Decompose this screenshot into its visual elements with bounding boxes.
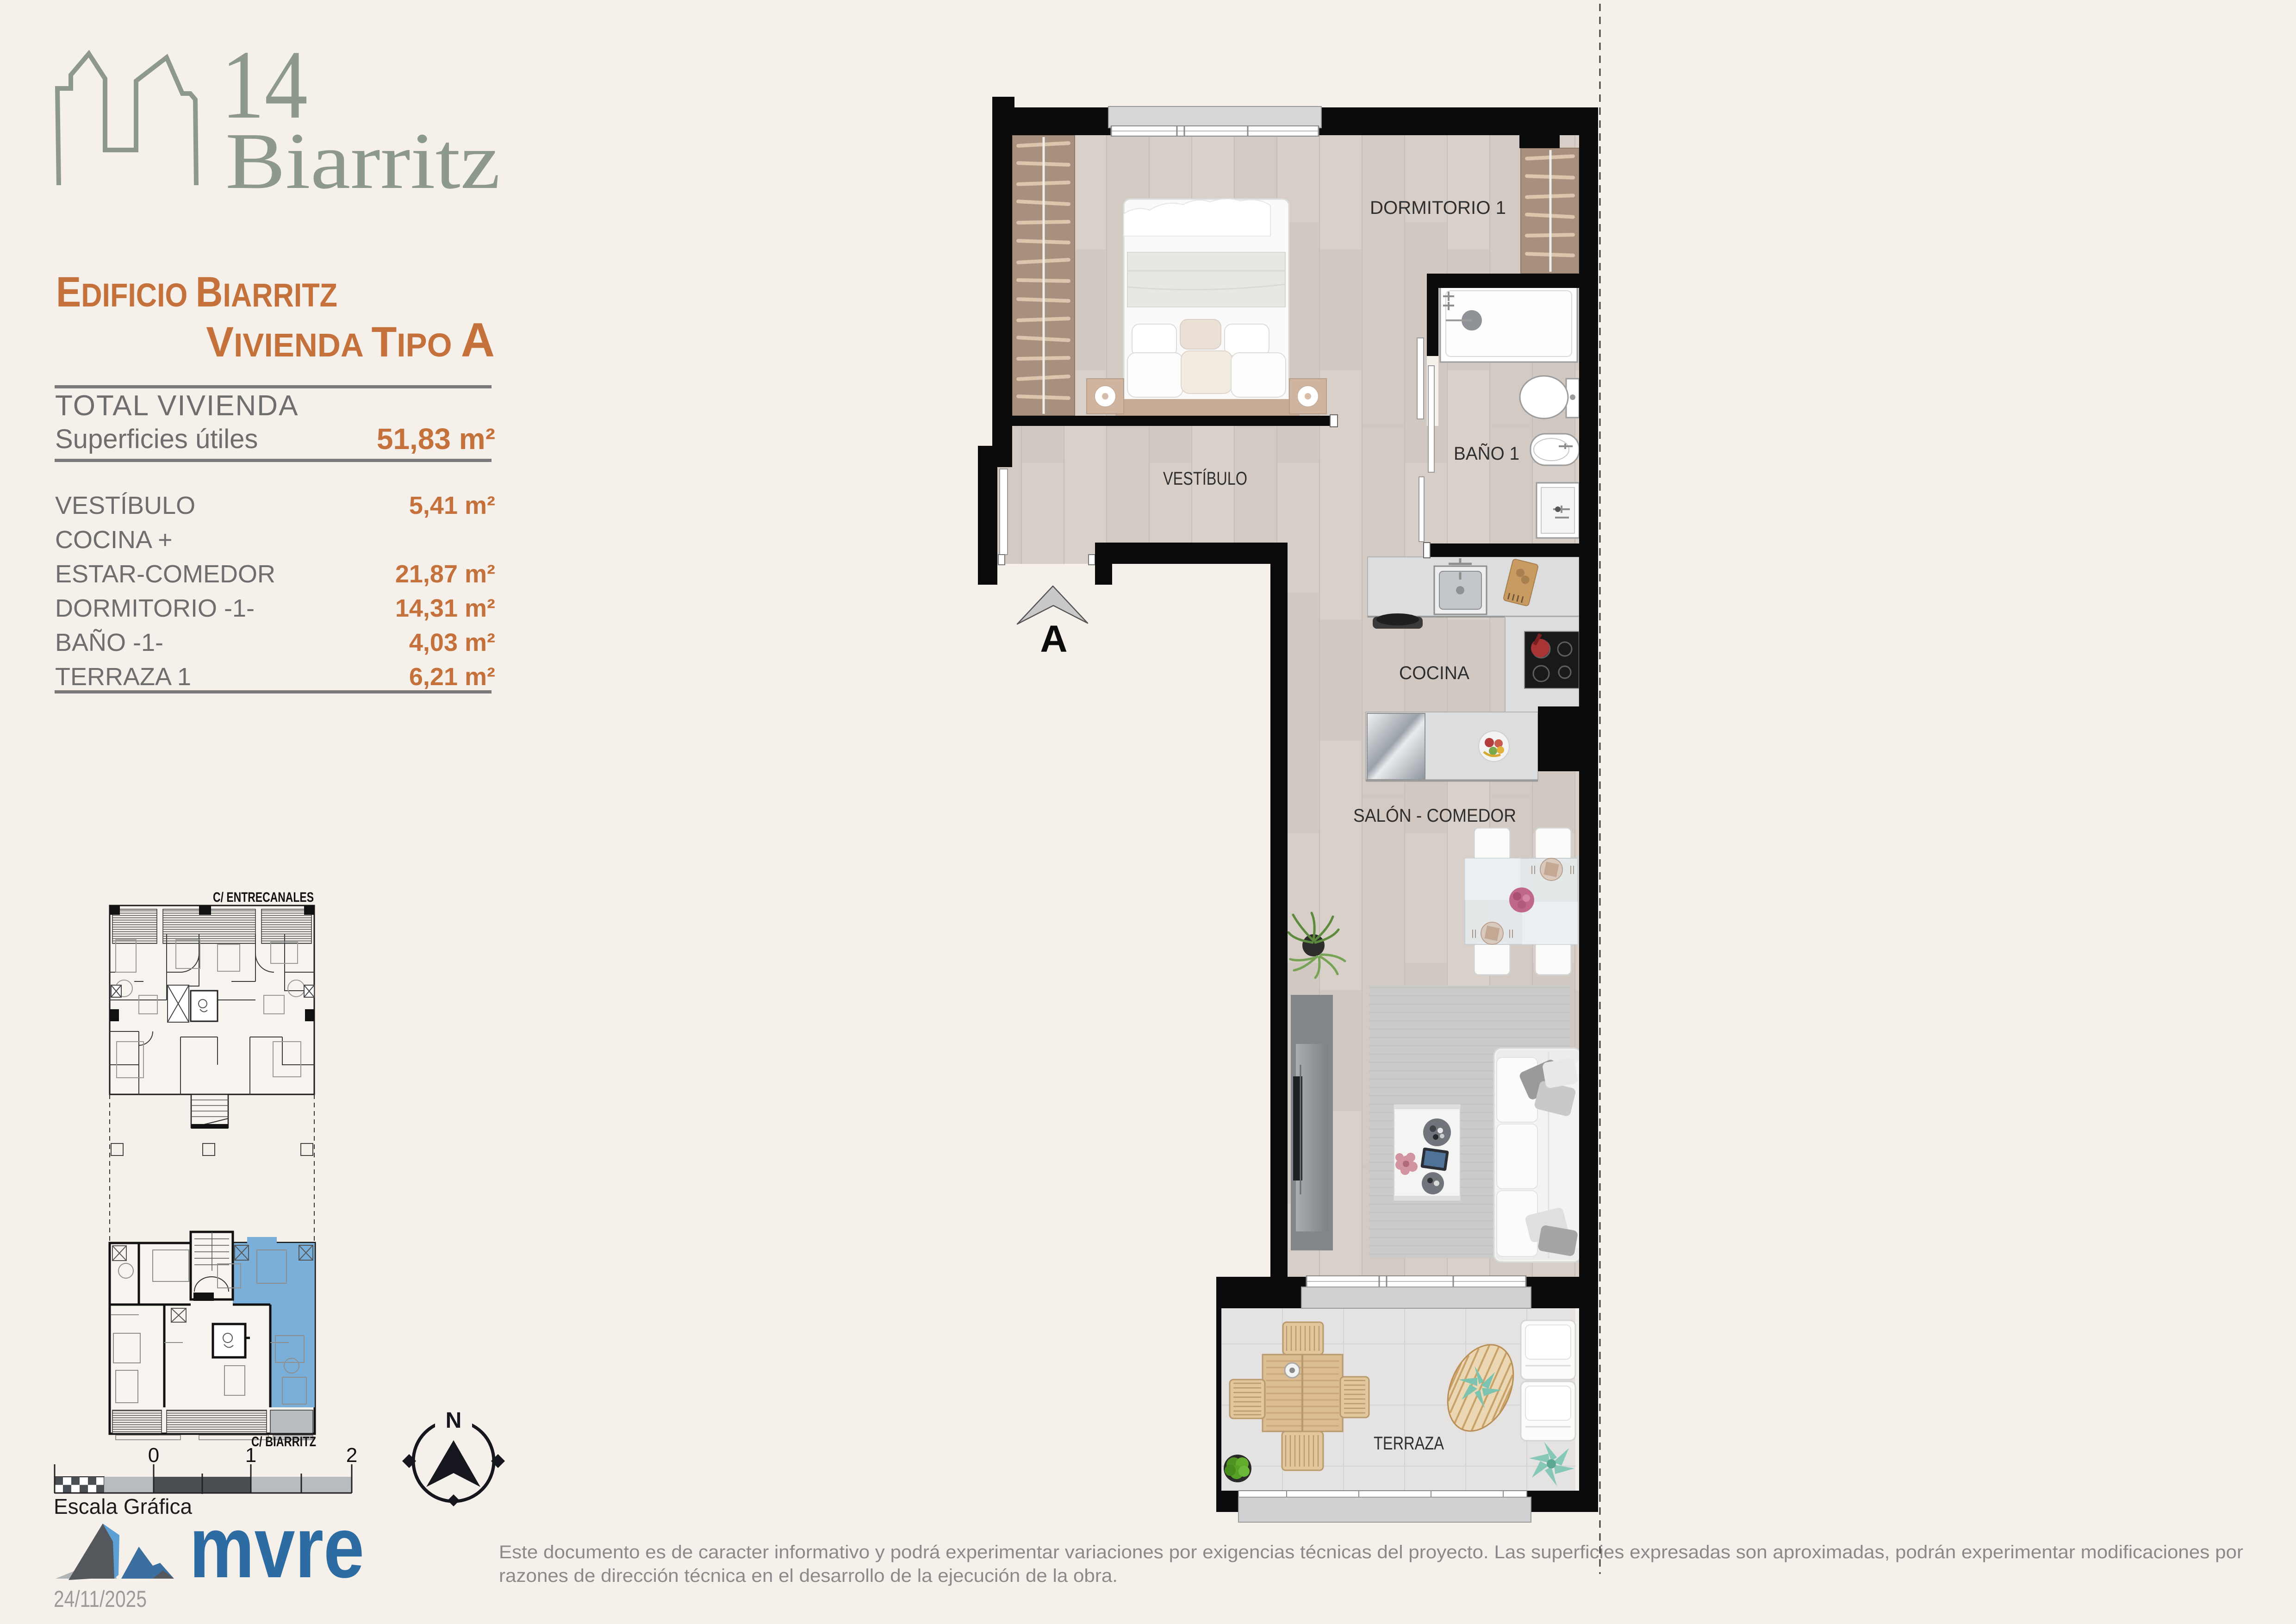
svg-text:C/ BIARRITZ: C/ BIARRITZ <box>251 1434 316 1449</box>
svg-text:COCINA +: COCINA + <box>55 526 173 554</box>
svg-text:C/ ENTRECANALES: C/ ENTRECANALES <box>213 890 314 905</box>
svg-text:TERRAZA: TERRAZA <box>1374 1433 1444 1454</box>
svg-text:Este documento es de caracter: Este documento es de caracter informativ… <box>499 1542 2243 1562</box>
svg-text:A: A <box>1040 618 1067 660</box>
svg-text:VESTÍBULO: VESTÍBULO <box>55 492 195 519</box>
svg-text:mvre: mvre <box>189 1499 364 1596</box>
svg-text:VESTÍBULO: VESTÍBULO <box>1163 468 1247 489</box>
svg-text:TERRAZA 1: TERRAZA 1 <box>55 663 191 691</box>
svg-text:2: 2 <box>346 1444 357 1467</box>
svg-text:N: N <box>446 1408 462 1433</box>
svg-text:ESTAR-COMEDOR: ESTAR-COMEDOR <box>55 560 275 588</box>
svg-text:Escala Gráfica: Escala Gráfica <box>54 1494 193 1518</box>
svg-text:1: 1 <box>245 1444 256 1467</box>
svg-text:SALÓN - COMEDOR: SALÓN - COMEDOR <box>1353 805 1516 826</box>
svg-text:14,31 m²: 14,31 m² <box>395 594 495 622</box>
svg-text:Biarritz: Biarritz <box>225 116 500 206</box>
svg-text:BAÑO -1-: BAÑO -1- <box>55 629 163 656</box>
svg-text:0: 0 <box>148 1444 159 1467</box>
svg-text:6,21 m²: 6,21 m² <box>409 663 495 691</box>
svg-text:4,03 m²: 4,03 m² <box>409 629 495 656</box>
svg-text:DORMITORIO -1-: DORMITORIO -1- <box>55 594 255 622</box>
svg-text:BAÑO 1: BAÑO 1 <box>1454 443 1519 464</box>
svg-text:51,83 m²: 51,83 m² <box>377 422 495 456</box>
svg-text:razones de dirección técnica e: razones de dirección técnica en el desar… <box>499 1566 1118 1586</box>
svg-text:21,87 m²: 21,87 m² <box>395 560 495 588</box>
svg-text:24/11/2025: 24/11/2025 <box>54 1586 147 1612</box>
svg-text:DORMITORIO 1: DORMITORIO 1 <box>1370 198 1506 218</box>
svg-text:TOTAL VIVIENDA: TOTAL VIVIENDA <box>55 390 299 422</box>
svg-text:5,41 m²: 5,41 m² <box>409 492 495 519</box>
svg-text:Superficies útiles: Superficies útiles <box>55 424 258 454</box>
svg-text:COCINA: COCINA <box>1399 663 1469 683</box>
